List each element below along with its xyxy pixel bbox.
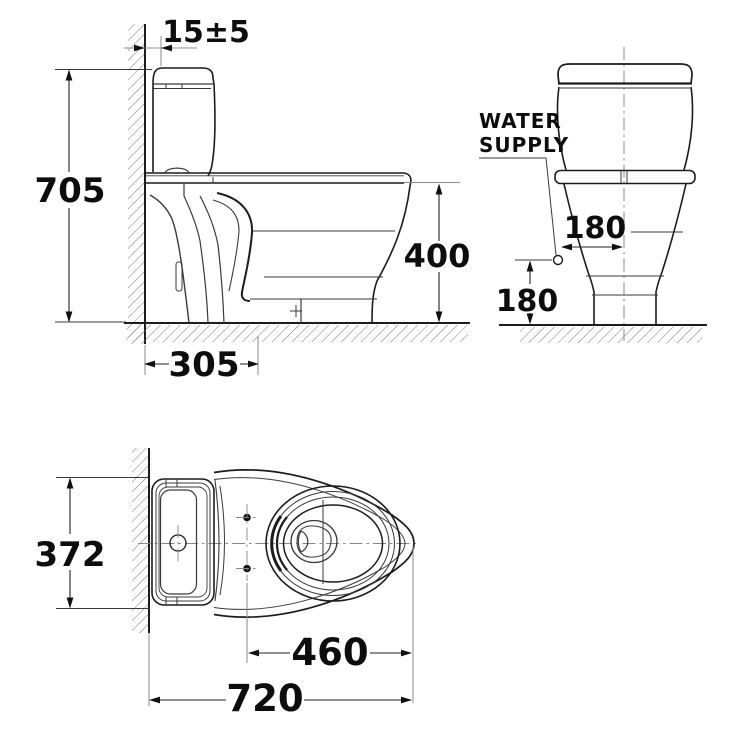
side-seams — [250, 231, 395, 323]
dim-supply-to-center: 180 — [564, 211, 627, 246]
front-floor-hatch — [520, 327, 702, 343]
front-seat-band — [555, 171, 695, 184]
top-wall-hatch — [132, 448, 149, 633]
drawing-sheet: 15±5 705 400 305 — [0, 0, 740, 740]
top-view: 372 460 720 — [35, 448, 420, 720]
wall-hatch — [128, 24, 145, 344]
front-body — [564, 184, 686, 325]
dim-overall-height: 705 — [35, 171, 106, 211]
mounting-bolts — [236, 504, 258, 581]
outlet-cross-mark — [290, 305, 302, 317]
water-supply-label-line2: SUPPLY — [479, 133, 569, 157]
dim-outlet-from-wall: 305 — [169, 345, 240, 385]
water-supply-leader — [479, 158, 556, 255]
dim-wall-gap: 15±5 — [162, 15, 250, 50]
front-view: WATER SUPPLY 180 180 — [479, 47, 707, 343]
front-tank — [557, 64, 692, 170]
water-supply-point — [554, 256, 563, 265]
side-tank — [153, 68, 215, 183]
dim-bolt-line-to-front-group: 460 — [248, 631, 412, 674]
water-supply-label-line1: WATER — [479, 109, 562, 133]
side-view: 15±5 705 400 305 — [35, 15, 471, 385]
dim-overall-width: 372 — [35, 535, 106, 575]
dim-bolt-line-to-front: 460 — [291, 631, 368, 674]
dim-overall-depth: 720 — [226, 677, 303, 720]
dim-overall-width-group: 372 — [35, 478, 149, 609]
dim-rim-height: 400 — [404, 237, 471, 275]
dim-outlet-from-wall-group: 305 — [144, 336, 259, 385]
dim-supply-to-center-group: 180 — [561, 211, 626, 250]
dim-supply-height: 180 — [496, 284, 559, 319]
technical-drawing-canvas: 15±5 705 400 305 — [0, 0, 740, 740]
dim-supply-height-group: 180 — [496, 260, 559, 325]
side-seat — [145, 173, 411, 186]
dim-overall-depth-group: 720 — [149, 677, 412, 720]
side-trapway — [150, 183, 252, 323]
top-tank — [152, 479, 214, 605]
dim-rim-height-group: 400 — [404, 183, 471, 323]
floor-hatch — [126, 325, 468, 342]
